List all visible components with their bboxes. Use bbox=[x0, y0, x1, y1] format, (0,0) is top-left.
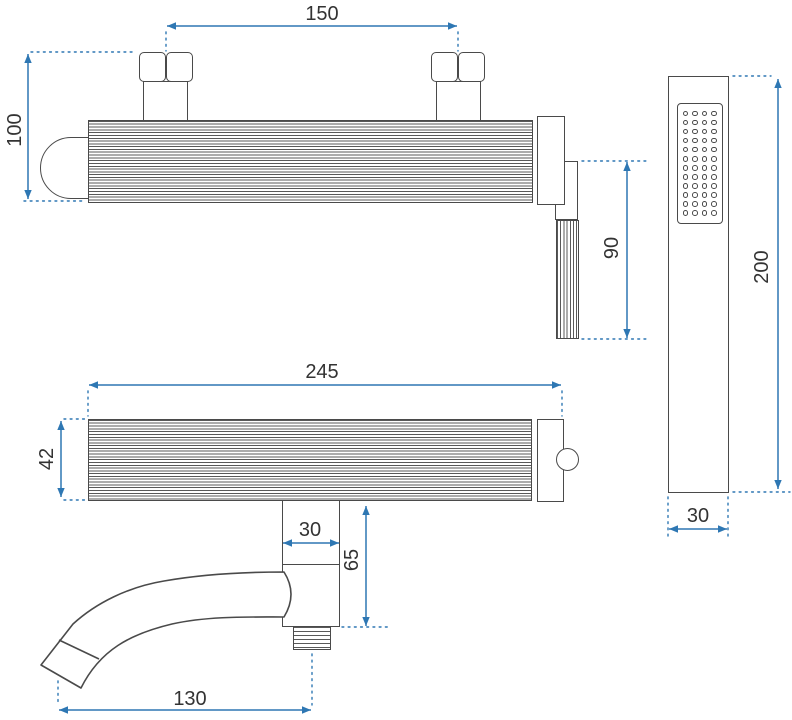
spray-hole bbox=[683, 165, 689, 171]
spray-hole bbox=[683, 147, 689, 153]
spray-hole bbox=[702, 174, 708, 180]
spray-hole bbox=[702, 147, 708, 153]
dim-42-extensions bbox=[64, 419, 85, 500]
spray-hole bbox=[692, 147, 698, 153]
spray-hole bbox=[692, 138, 698, 144]
dim-200-label: 200 bbox=[752, 250, 772, 283]
dim-245-label: 245 bbox=[305, 362, 338, 382]
spray-hole bbox=[711, 156, 717, 162]
spray-hole bbox=[711, 129, 717, 135]
dim-65-label: 65 bbox=[342, 549, 362, 571]
spray-hole bbox=[711, 165, 717, 171]
spray-hole bbox=[711, 174, 717, 180]
mixer-bar-front bbox=[88, 120, 533, 203]
dim-30-block-label: 30 bbox=[299, 520, 321, 540]
spray-hole bbox=[702, 201, 708, 207]
dim-30-shower-label: 30 bbox=[687, 506, 709, 526]
dim-150-extensions bbox=[166, 32, 458, 51]
spray-hole bbox=[683, 210, 689, 216]
spray-hole bbox=[702, 210, 708, 216]
spray-hole bbox=[711, 201, 717, 207]
spray-hole bbox=[711, 210, 717, 216]
spray-hole bbox=[702, 120, 708, 126]
spray-hole bbox=[702, 183, 708, 189]
spout-outline bbox=[41, 572, 291, 688]
spray-hole bbox=[692, 183, 698, 189]
mixer-bar-bottom bbox=[88, 419, 532, 501]
spray-hole bbox=[702, 138, 708, 144]
shower-hose-outlet bbox=[556, 220, 579, 339]
spray-hole bbox=[692, 111, 698, 117]
mount-right-nut-face-b bbox=[458, 52, 485, 82]
spray-hole bbox=[702, 192, 708, 198]
spray-hole bbox=[692, 120, 698, 126]
spray-hole bbox=[702, 129, 708, 135]
dim-200-extensions bbox=[733, 76, 790, 492]
spray-hole bbox=[683, 129, 689, 135]
spray-hole bbox=[702, 156, 708, 162]
spray-hole bbox=[692, 210, 698, 216]
spray-hole bbox=[683, 174, 689, 180]
technical-drawing-canvas: 150 100 90 200 30 245 42 30 65 130 bbox=[0, 0, 792, 720]
spray-hole bbox=[711, 147, 717, 153]
mount-left-cylinder bbox=[143, 81, 188, 122]
mount-right-nut-face-a bbox=[431, 52, 458, 82]
spray-hole bbox=[692, 156, 698, 162]
spray-hole bbox=[692, 192, 698, 198]
spray-hole bbox=[711, 120, 717, 126]
mixer-end-knob-front bbox=[40, 137, 90, 199]
spray-hole bbox=[692, 165, 698, 171]
mount-right-cylinder bbox=[436, 81, 481, 122]
spray-hole bbox=[711, 138, 717, 144]
spray-hole bbox=[683, 120, 689, 126]
handle-knob-bottom bbox=[556, 448, 579, 471]
dim-245-extensions bbox=[88, 391, 562, 416]
spray-hole bbox=[683, 183, 689, 189]
mixer-end-cap-front bbox=[537, 116, 565, 205]
spray-hole bbox=[683, 192, 689, 198]
spray-hole bbox=[692, 174, 698, 180]
spray-hole bbox=[683, 111, 689, 117]
spray-hole bbox=[683, 201, 689, 207]
dim-150-label: 150 bbox=[305, 4, 338, 24]
dim-130-label: 130 bbox=[173, 689, 206, 709]
spout-aerator-ring-line bbox=[59, 640, 99, 659]
mount-left-nut-face-a bbox=[139, 52, 166, 82]
spray-hole bbox=[683, 138, 689, 144]
hand-shower-spray-plate bbox=[677, 103, 723, 224]
spout-threaded-connector bbox=[293, 627, 331, 650]
dim-100-label: 100 bbox=[5, 113, 25, 146]
spout-block-divider-line bbox=[283, 564, 339, 565]
spray-hole bbox=[683, 156, 689, 162]
spray-hole bbox=[702, 111, 708, 117]
spray-hole bbox=[711, 192, 717, 198]
spray-hole bbox=[711, 111, 717, 117]
spray-hole bbox=[692, 129, 698, 135]
spray-hole bbox=[711, 183, 717, 189]
mount-left-nut-face-b bbox=[166, 52, 193, 82]
dim-90-label: 90 bbox=[602, 237, 622, 259]
spray-hole bbox=[692, 201, 698, 207]
spray-hole bbox=[702, 165, 708, 171]
dim-42-label: 42 bbox=[37, 448, 57, 470]
